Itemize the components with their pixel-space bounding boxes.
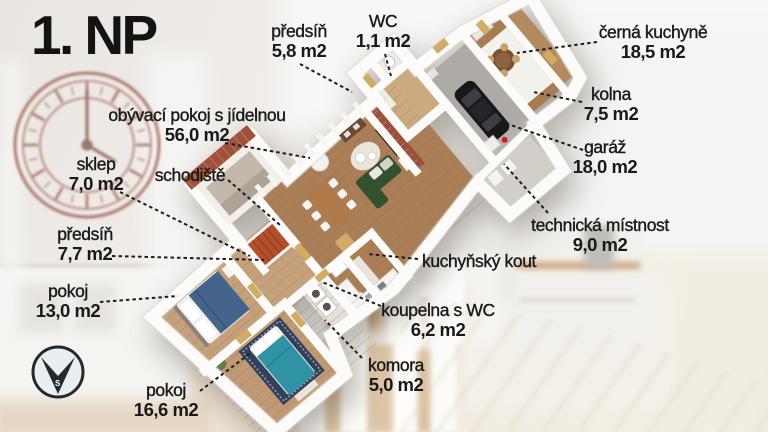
svg-text:S: S <box>55 379 61 388</box>
